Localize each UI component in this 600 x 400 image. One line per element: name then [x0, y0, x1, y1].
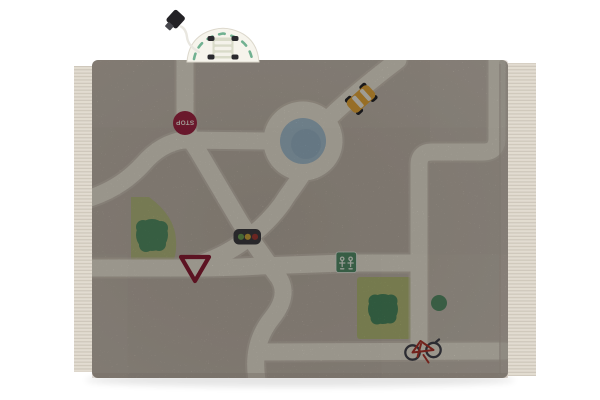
product-photo: STOP: [0, 0, 600, 400]
rug-texture: [92, 60, 508, 378]
fringe-right: [508, 63, 536, 376]
rug: STOP: [90, 58, 508, 380]
toy-tag: [162, 9, 186, 33]
toy-van-roof-stripes: [215, 41, 232, 56]
fringe-left: [74, 66, 93, 372]
toy-van: [162, 9, 259, 62]
play-rug-scene: STOP: [0, 0, 600, 400]
